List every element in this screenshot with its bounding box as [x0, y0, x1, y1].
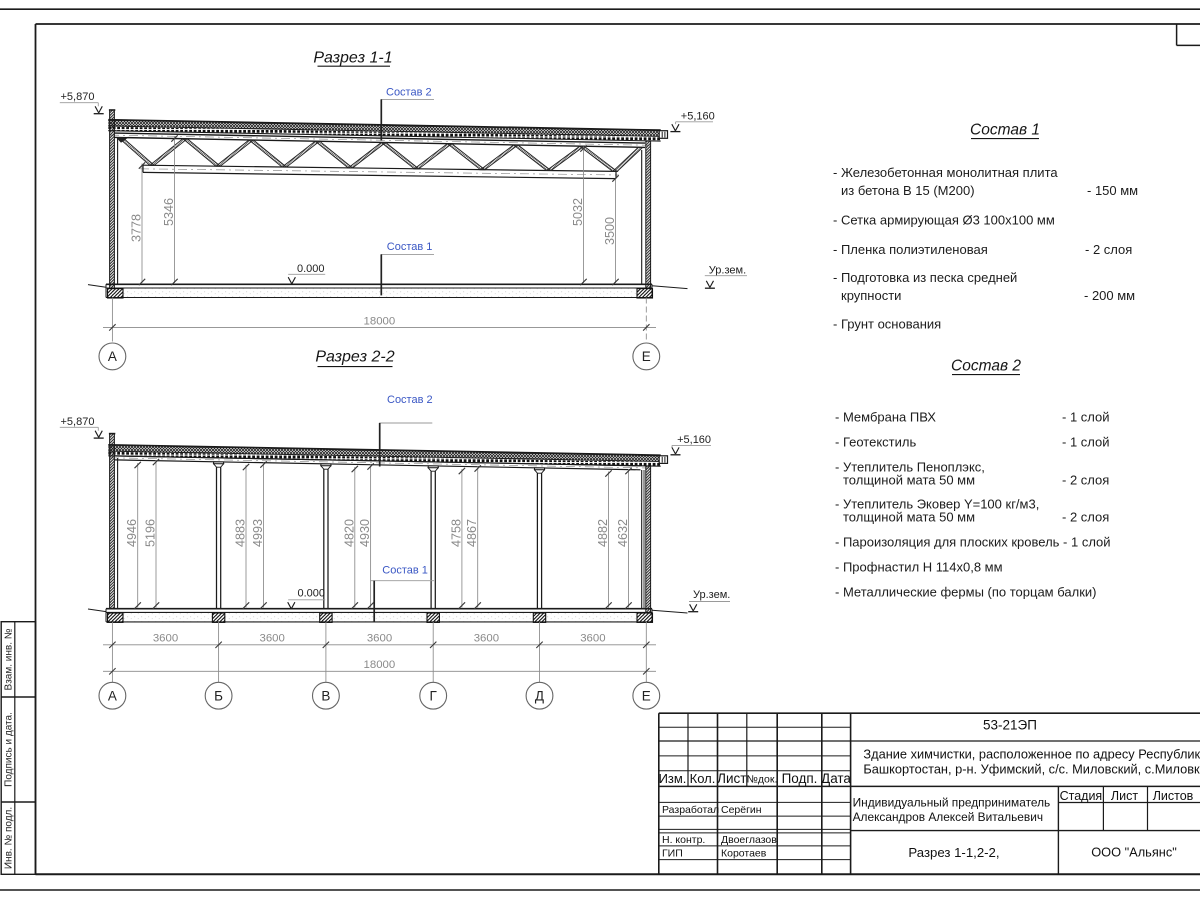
svg-text:Изм.: Изм.: [659, 771, 687, 786]
svg-text:- 1 слой: - 1 слой: [1062, 435, 1110, 450]
svg-text:Взам. инв. №: Взам. инв. №: [4, 628, 15, 690]
svg-text:4930: 4930: [358, 519, 372, 547]
svg-text:5032: 5032: [571, 198, 585, 226]
svg-text:- 2 слоя: - 2 слоя: [1085, 242, 1132, 257]
svg-text:Разрез 1-1: Разрез 1-1: [313, 50, 392, 67]
svg-text:- 200 мм: - 200 мм: [1084, 288, 1135, 303]
svg-text:4883: 4883: [234, 519, 248, 547]
svg-text:Серёгин: Серёгин: [721, 804, 762, 816]
svg-text:Ур.зем.: Ур.зем.: [709, 265, 746, 277]
svg-text:ГИП: ГИП: [662, 847, 683, 859]
svg-text:- Сетка армирующая Ø3 100х100: - Сетка армирующая Ø3 100х100 мм: [833, 213, 1055, 228]
svg-text:Состав 1: Состав 1: [970, 122, 1040, 139]
svg-text:- Мембрана ПВХ: - Мембрана ПВХ: [835, 410, 936, 425]
svg-text:В: В: [321, 689, 330, 704]
svg-text:Разработал: Разработал: [662, 804, 719, 816]
svg-text:- Подготовка из песка средней: - Подготовка из песка средней: [833, 270, 1017, 285]
svg-text:толщиной мата 50 мм: толщиной мата 50 мм: [843, 510, 975, 525]
svg-text:Разрез 2-2: Разрез 2-2: [315, 349, 394, 366]
svg-text:ООО "Альянс": ООО "Альянс": [1091, 845, 1177, 860]
svg-text:Состав 2: Состав 2: [951, 358, 1021, 375]
svg-text:Стадия: Стадия: [1060, 789, 1103, 803]
svg-text:+5,870: +5,870: [61, 416, 95, 428]
svg-text:4632: 4632: [616, 519, 630, 547]
svg-text:Инв. № подл.: Инв. № подл.: [4, 807, 15, 869]
svg-text:Лист: Лист: [717, 771, 746, 786]
svg-text:Башкортостан, р-н. Уфимский, с: Башкортостан, р-н. Уфимский, с/с. Миловс…: [863, 762, 1200, 777]
svg-text:5346: 5346: [162, 198, 176, 226]
svg-text:Состав 1: Состав 1: [382, 564, 428, 576]
svg-text:0.000: 0.000: [298, 587, 326, 599]
svg-text:Индивидуальный предприниматель: Индивидуальный предприниматель: [853, 795, 1051, 809]
svg-text:- 150 мм: - 150 мм: [1087, 183, 1138, 198]
svg-text:Лист: Лист: [1111, 789, 1138, 803]
svg-text:4993: 4993: [251, 519, 265, 547]
svg-text:Александров Алексей Витальевич: Александров Алексей Витальевич: [853, 810, 1043, 824]
svg-text:Состав 2: Состав 2: [386, 86, 432, 98]
svg-text:Состав 2: Состав 2: [387, 394, 433, 406]
svg-text:- Пленка полиэтиленовая: - Пленка полиэтиленовая: [833, 242, 988, 257]
svg-text:Состав 1: Состав 1: [387, 241, 433, 253]
svg-text:3778: 3778: [130, 214, 144, 242]
svg-text:Двоеглазов: Двоеглазов: [721, 834, 777, 846]
svg-text:4758: 4758: [449, 519, 463, 547]
svg-text:из бетона В 15 (М200): из бетона В 15 (М200): [841, 183, 975, 198]
svg-text:4820: 4820: [342, 519, 356, 547]
svg-text:- Профнастил Н 114х0,8 мм: - Профнастил Н 114х0,8 мм: [835, 560, 1003, 575]
svg-text:18000: 18000: [364, 659, 396, 671]
svg-text:+5,870: +5,870: [61, 91, 95, 103]
svg-text:- Металлические фермы (по торц: - Металлические фермы (по торцам балки): [835, 585, 1096, 600]
svg-text:- Грунт основания: - Грунт основания: [833, 317, 941, 332]
svg-text:Подп.: Подп.: [782, 771, 818, 786]
svg-text:Разрез 1-1,2-2,: Разрез 1-1,2-2,: [908, 845, 999, 860]
svg-text:- Пароизоляция для плоских кро: - Пароизоляция для плоских кровель - 1 с…: [835, 535, 1111, 550]
svg-text:Здание химчистки, расположенн: Здание химчистки, расположенное по адрес…: [863, 746, 1200, 761]
svg-text:Коротаев: Коротаев: [721, 847, 767, 859]
svg-text:Д: Д: [535, 689, 544, 704]
svg-text:- 2 слоя: - 2 слоя: [1062, 473, 1109, 488]
svg-text:- 1 слой: - 1 слой: [1062, 410, 1110, 425]
svg-text:А: А: [108, 689, 117, 704]
svg-text:5196: 5196: [144, 519, 158, 547]
svg-text:крупности: крупности: [841, 288, 901, 303]
svg-text:А: А: [108, 349, 117, 364]
svg-text:Дата: Дата: [821, 771, 851, 786]
svg-text:- Железобетонная монолитная п: - Железобетонная монолитная плита: [833, 165, 1058, 180]
svg-text:4867: 4867: [465, 519, 479, 547]
svg-text:№док.: №док.: [747, 774, 778, 786]
svg-text:3500: 3500: [603, 217, 617, 245]
svg-text:толщиной мата 50 мм: толщиной мата 50 мм: [843, 473, 975, 488]
svg-text:Г: Г: [430, 689, 438, 704]
svg-text:- Геотекстиль: - Геотекстиль: [835, 435, 916, 450]
svg-text:Б: Б: [214, 689, 223, 704]
svg-text:4882: 4882: [596, 519, 610, 547]
svg-text:+5,160: +5,160: [677, 434, 711, 446]
svg-text:Листов: Листов: [1153, 789, 1194, 803]
svg-text:3600: 3600: [474, 633, 499, 645]
svg-text:0.000: 0.000: [297, 263, 325, 275]
svg-text:Подпись и дата.: Подпись и дата.: [4, 712, 15, 787]
svg-text:+5,160: +5,160: [681, 111, 715, 123]
svg-text:3600: 3600: [580, 633, 605, 645]
svg-text:Ур.зем.: Ур.зем.: [693, 589, 730, 601]
svg-text:- 2 слоя: - 2 слоя: [1062, 510, 1109, 525]
svg-text:18000: 18000: [364, 315, 396, 327]
svg-text:Н. контр.: Н. контр.: [662, 834, 705, 846]
svg-text:53-21ЭП: 53-21ЭП: [983, 718, 1037, 733]
svg-text:3600: 3600: [260, 633, 285, 645]
svg-text:Кол.: Кол.: [690, 771, 716, 786]
svg-text:Е: Е: [642, 689, 651, 704]
svg-text:Е: Е: [642, 349, 651, 364]
svg-text:4946: 4946: [125, 519, 139, 547]
svg-text:3600: 3600: [153, 633, 178, 645]
svg-text:3600: 3600: [367, 633, 392, 645]
